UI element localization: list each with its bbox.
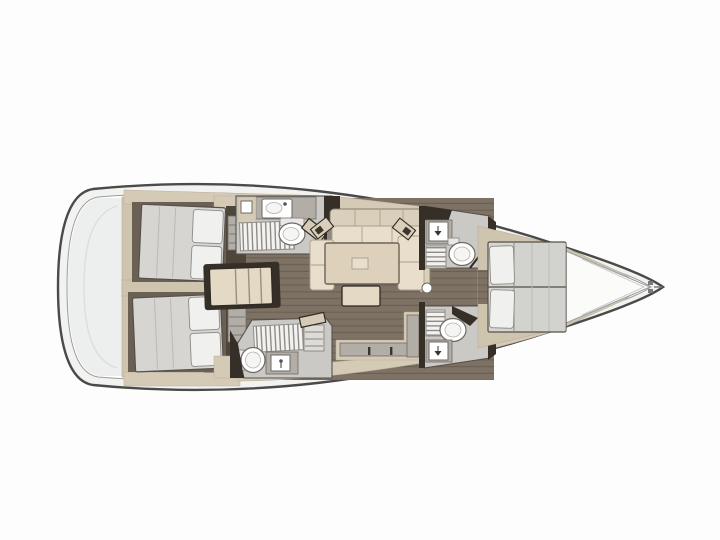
floor-plan-drawing bbox=[0, 0, 720, 540]
counter-top bbox=[340, 343, 418, 356]
bench-seat bbox=[342, 286, 380, 306]
mast-post bbox=[422, 283, 432, 293]
toilet-bowl bbox=[454, 247, 470, 261]
bow-fitting bbox=[648, 289, 653, 293]
toilet-bowl bbox=[283, 228, 299, 241]
swim-platform bbox=[68, 198, 124, 376]
forward-cabin bbox=[478, 226, 662, 348]
bow-fitting bbox=[648, 281, 653, 285]
counter-top bbox=[407, 315, 419, 357]
grate bbox=[253, 324, 304, 353]
drawer-handle-icon bbox=[368, 347, 370, 355]
yacht-floor-plan bbox=[0, 0, 720, 540]
head-wall bbox=[419, 206, 425, 270]
pillow bbox=[192, 209, 223, 243]
drawer-handle-icon bbox=[390, 347, 392, 355]
faucet-icon bbox=[283, 202, 287, 206]
head-wall bbox=[419, 302, 425, 368]
companionway-steps bbox=[203, 262, 281, 311]
island-double-berth bbox=[488, 242, 566, 332]
pillow bbox=[489, 290, 514, 329]
sofa-back bbox=[330, 209, 424, 227]
pillow bbox=[489, 246, 514, 285]
toilet-bowl bbox=[246, 352, 261, 368]
sink-basin bbox=[266, 203, 282, 214]
toilet-bowl bbox=[445, 323, 461, 337]
table-centerpiece bbox=[352, 258, 368, 269]
steps bbox=[209, 267, 272, 306]
shower-grate bbox=[253, 324, 304, 353]
shower-step bbox=[304, 325, 324, 351]
cabinet-box bbox=[241, 201, 252, 213]
shower-grate bbox=[426, 246, 446, 268]
